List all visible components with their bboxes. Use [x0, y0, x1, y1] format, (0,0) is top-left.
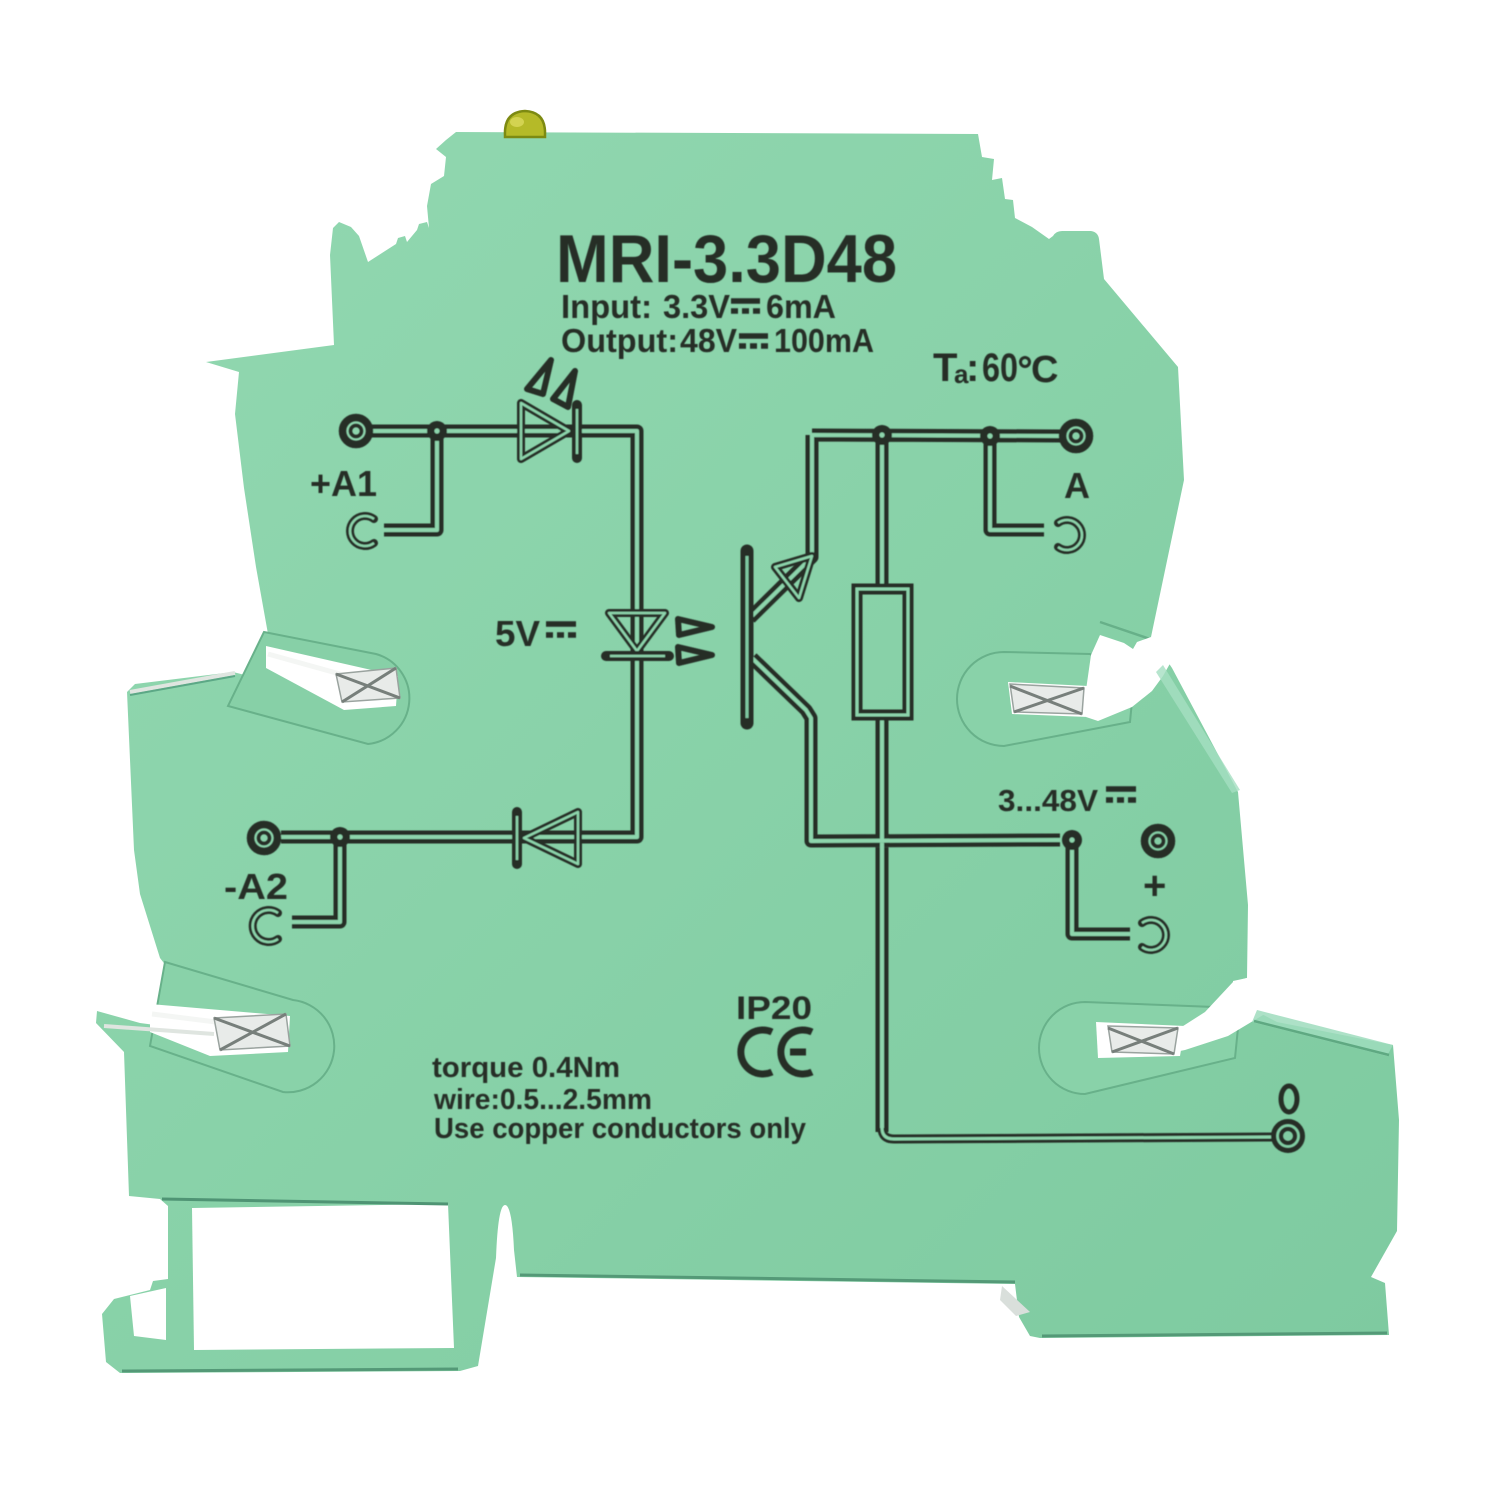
svg-text:6mA: 6mA: [766, 288, 836, 325]
svg-text:3...48V: 3...48V: [998, 783, 1098, 818]
svg-text:torque 0.4Nm: torque 0.4Nm: [432, 1052, 620, 1084]
svg-text::: :: [966, 346, 979, 390]
svg-text:Output:: Output:: [561, 322, 678, 359]
svg-text:48V: 48V: [680, 322, 737, 359]
svg-text:-A2: -A2: [224, 866, 288, 907]
svg-text:C: C: [1031, 349, 1058, 391]
svg-text:3.3V: 3.3V: [663, 288, 730, 325]
svg-text:MRI-3.3D48: MRI-3.3D48: [556, 221, 897, 297]
svg-text:IP20: IP20: [736, 990, 812, 1026]
svg-text:wire:0.5...2.5mm: wire:0.5...2.5mm: [433, 1084, 652, 1116]
svg-text:60: 60: [982, 346, 1018, 390]
svg-text:5V: 5V: [495, 613, 540, 654]
svg-text:A: A: [1064, 465, 1090, 506]
svg-text:Input:: Input:: [561, 288, 652, 325]
svg-text:+: +: [1143, 864, 1166, 908]
svg-text:100mA: 100mA: [774, 322, 874, 359]
svg-text:+A1: +A1: [310, 463, 377, 504]
svg-text:Use copper conductors only: Use copper conductors only: [434, 1113, 806, 1145]
